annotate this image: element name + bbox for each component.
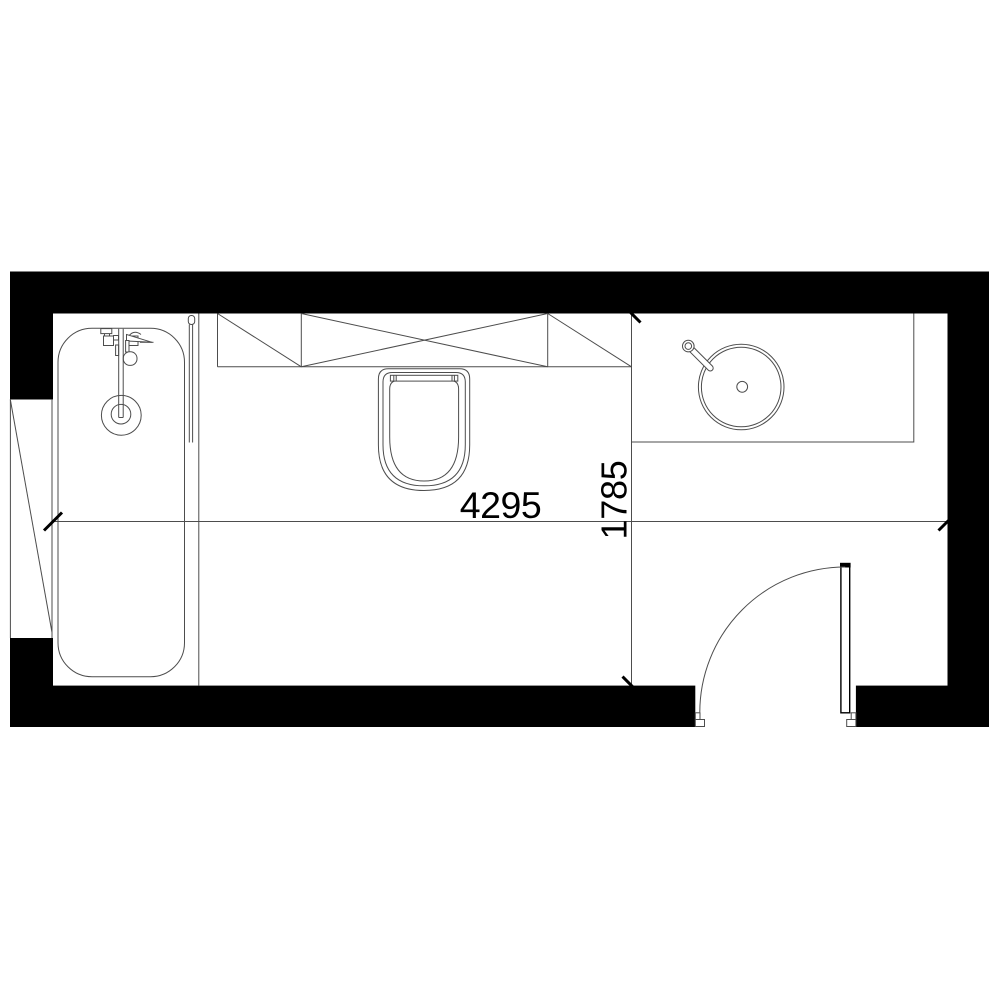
svg-text:4295: 4295: [460, 484, 541, 526]
svg-text:1785: 1785: [594, 461, 635, 540]
